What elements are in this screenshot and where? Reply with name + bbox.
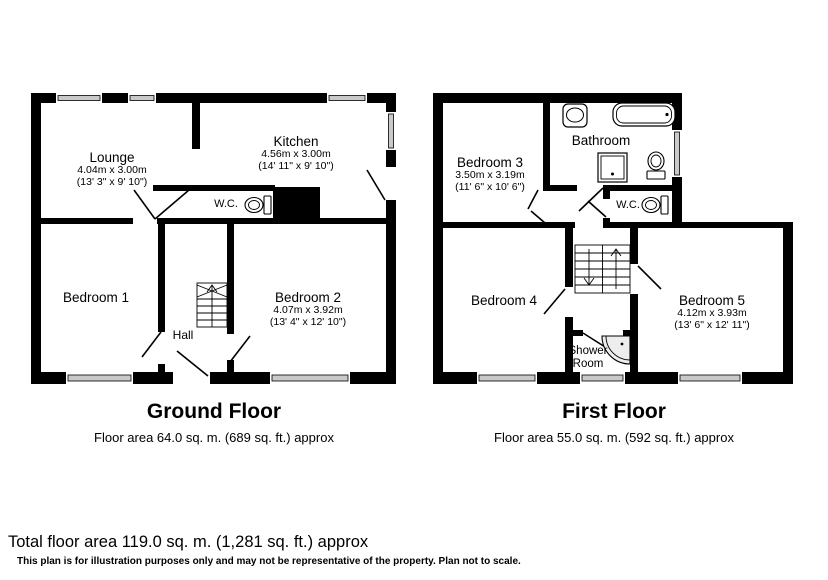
window-bedroom5 [678, 372, 742, 384]
room-label-wc-ground: W.C. [214, 198, 238, 210]
window-lounge-1 [56, 93, 102, 103]
room-label-bedroom3: Bedroom 3 3.50m x 3.19m (11' 6" x 10' 6"… [455, 155, 525, 194]
room-label-hall: Hall [173, 328, 194, 342]
window-lounge-2 [128, 93, 156, 103]
window-bedroom4 [477, 372, 537, 384]
room-name: Bedroom 1 [63, 290, 129, 305]
total-floor-area: Total floor area 119.0 sq. m. (1,281 sq.… [8, 533, 368, 552]
room-label-bedroom1: Bedroom 1 [63, 290, 129, 305]
first-interior-walls [433, 103, 672, 384]
door-front-entrance [173, 351, 210, 384]
stairs-first-icon [575, 245, 630, 293]
room-label-shower-room: Shower Room [559, 345, 617, 371]
ground-interior-walls [41, 103, 386, 372]
stairs-ground-icon [197, 283, 227, 327]
door-bedroom4 [544, 289, 565, 314]
door-lounge-hall [134, 190, 189, 219]
room-name: Bedroom 5 [674, 293, 749, 308]
window-kitchen-side [386, 112, 396, 150]
toilet-wc-icon [642, 196, 668, 214]
room-dim-imperial: (13' 6" x 12' 11") [674, 320, 749, 332]
room-name: Bedroom 3 [455, 155, 525, 170]
room-label-wc-first: W.C. [616, 199, 640, 211]
first-floor-title: First Floor [562, 400, 666, 424]
door-bedroom3 [528, 190, 545, 223]
room-name: Bedroom 2 [270, 290, 346, 305]
room-name: Lounge [77, 150, 147, 165]
ground-floor-area: Floor area 64.0 sq. m. (689 sq. ft.) app… [94, 430, 334, 445]
room-label-lounge: Lounge 4.04m x 3.00m (13' 3" x 9' 10") [77, 150, 147, 189]
basin-icon [563, 104, 587, 127]
shower-tray-icon [598, 153, 627, 182]
room-label-bedroom4: Bedroom 4 [471, 293, 537, 308]
disclaimer-text: This plan is for illustration purposes o… [17, 556, 521, 567]
door-kitchen-rear [367, 167, 396, 200]
window-shower-room [580, 372, 625, 384]
door-bathroom [579, 188, 603, 211]
window-bathroom-side [672, 130, 682, 177]
window-bedroom2 [270, 372, 350, 384]
room-name: Bathroom [572, 133, 631, 148]
room-name: Bedroom 4 [471, 293, 537, 308]
first-floor-area: Floor area 55.0 sq. m. (592 sq. ft.) app… [494, 430, 734, 445]
window-bedroom1 [66, 372, 133, 384]
room-label-bedroom5: Bedroom 5 4.12m x 3.93m (13' 6" x 12' 11… [674, 293, 749, 332]
door-wc-first [588, 201, 606, 217]
ground-floor-title: Ground Floor [147, 400, 281, 424]
door-bedroom2 [230, 336, 250, 362]
room-label-kitchen: Kitchen 4.56m x 3.00m (14' 11" x 9' 10") [258, 134, 333, 173]
floorplan-page: Lounge 4.04m x 3.00m (13' 3" x 9' 10") K… [0, 0, 828, 580]
room-dim-imperial: (13' 4" x 12' 10") [270, 317, 346, 329]
room-label-bathroom: Bathroom [572, 133, 631, 148]
room-dim-imperial: (13' 3" x 9' 10") [77, 177, 147, 189]
toilet-bathroom-icon [647, 152, 665, 179]
room-dim-imperial: (14' 11" x 9' 10") [258, 161, 333, 173]
door-bedroom1 [142, 332, 161, 357]
ground-floor-plan [20, 88, 405, 390]
room-dim-imperial: (11' 6" x 10' 6") [455, 182, 525, 194]
room-label-bedroom2: Bedroom 2 4.07m x 3.92m (13' 4" x 12' 10… [270, 290, 346, 329]
door-bedroom5 [638, 266, 661, 289]
window-kitchen-top [327, 93, 367, 103]
room-name: Kitchen [258, 134, 333, 149]
toilet-icon [245, 196, 271, 214]
ground-outer-walls [31, 93, 396, 384]
bathtub-icon [613, 103, 675, 126]
